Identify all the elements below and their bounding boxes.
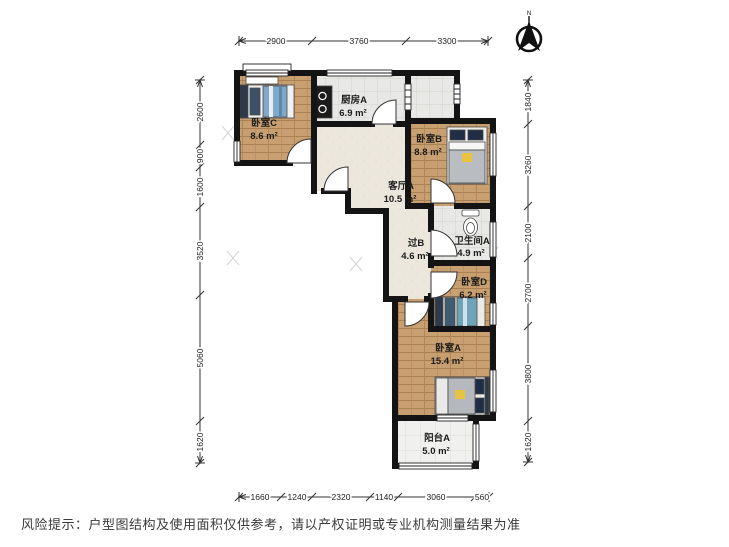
window-balcony-bottom [399, 463, 472, 469]
balcony-slider [437, 415, 468, 421]
bed-bedroom-a [435, 377, 489, 415]
label-bedroom-d: 卧室D [461, 276, 487, 288]
dim-left-2: 1600 [195, 177, 205, 196]
floor-entry [408, 73, 457, 121]
entry-door [454, 84, 460, 104]
toilet-icon [462, 210, 479, 236]
window-bedroom-b-right [490, 133, 496, 176]
window-kitchen-top [327, 70, 392, 76]
dim-left-4: 5060 [195, 348, 205, 367]
window-bedroom-a-right [490, 370, 496, 412]
area-bedroom-c: 8.6 m² [250, 131, 277, 142]
dim-right-1: 3260 [523, 155, 533, 174]
dim-top-0: 2900 [267, 36, 286, 46]
dim-bottom-4: 3060 [427, 492, 446, 502]
dim-right-0: 1840 [523, 92, 533, 111]
dim-bottom-3: 1140 [375, 492, 394, 502]
dim-left-5: 1620 [195, 432, 205, 451]
area-kitchen-a: 6.9 m² [339, 108, 366, 119]
area-living-a: 10.5 m² [384, 194, 417, 205]
label-bath-a: 卫生间A [454, 235, 490, 247]
dim-right-2: 2100 [523, 223, 533, 242]
dim-bottom-2: 2320 [332, 492, 351, 502]
window-balcony-right [473, 424, 479, 461]
shelf-bedroom-c [246, 77, 278, 84]
label-kitchen-a: 厨房A [341, 94, 367, 106]
label-living-a: 客厅A [387, 180, 414, 192]
label-hall-b: 过B [408, 237, 425, 249]
label-bedroom-b: 卧室B [416, 133, 442, 145]
label-bedroom-a: 卧室A [435, 342, 461, 354]
dim-right-5: 1620 [523, 432, 533, 451]
floor-plan-svg: 卧室C 8.6 m² 厨房A 6.9 m² 卧室B 8.8 m² 客厅A 10.… [0, 0, 729, 547]
area-bedroom-d: 6.2 m² [459, 290, 486, 301]
label-balcony-a: 阳台A [424, 432, 450, 444]
dim-right-3: 2700 [523, 283, 533, 302]
dim-top-2: 3300 [438, 36, 457, 46]
window-bath-right [490, 222, 496, 257]
area-hall-b: 4.6 m² [401, 251, 428, 262]
window-bedroom-d-right [490, 303, 496, 325]
risk-disclaimer: 风险提示：户型图结构及使用面积仅供参考，请以产权证明或专业机构测量结果为准 [21, 514, 521, 533]
dim-top-1: 3760 [350, 36, 369, 46]
window-bedroom-c-top [243, 64, 291, 76]
bed-bedroom-d [435, 297, 485, 327]
dim-bottom-0: 1660 [251, 492, 270, 502]
area-bedroom-a: 15.4 m² [431, 356, 464, 367]
area-bath-a: 4.9 m² [457, 248, 484, 259]
area-balcony-a: 5.0 m² [422, 446, 449, 457]
area-bedroom-b: 8.8 m² [414, 147, 441, 158]
kitchen-entry-pass [405, 84, 411, 110]
compass-north-label: N [527, 11, 531, 17]
dim-right-4: 3800 [523, 364, 533, 383]
floor-plan-page: { "disclaimer": "风险提示：户型图结构及使用面积仅供参考，请以产… [0, 0, 729, 547]
dim-left-1: 900 [195, 149, 205, 163]
dim-left-0: 2600 [195, 102, 205, 121]
window-bedroom-c-left [234, 141, 240, 162]
label-bedroom-c: 卧室C [251, 117, 277, 129]
dim-left-3: 3520 [195, 241, 205, 260]
compass-icon: N [517, 11, 541, 51]
dim-bottom-1: 1240 [288, 492, 307, 502]
bed-bedroom-c [239, 85, 294, 118]
dim-bottom-5: 560 [475, 492, 489, 502]
bed-bedroom-b [447, 127, 487, 184]
